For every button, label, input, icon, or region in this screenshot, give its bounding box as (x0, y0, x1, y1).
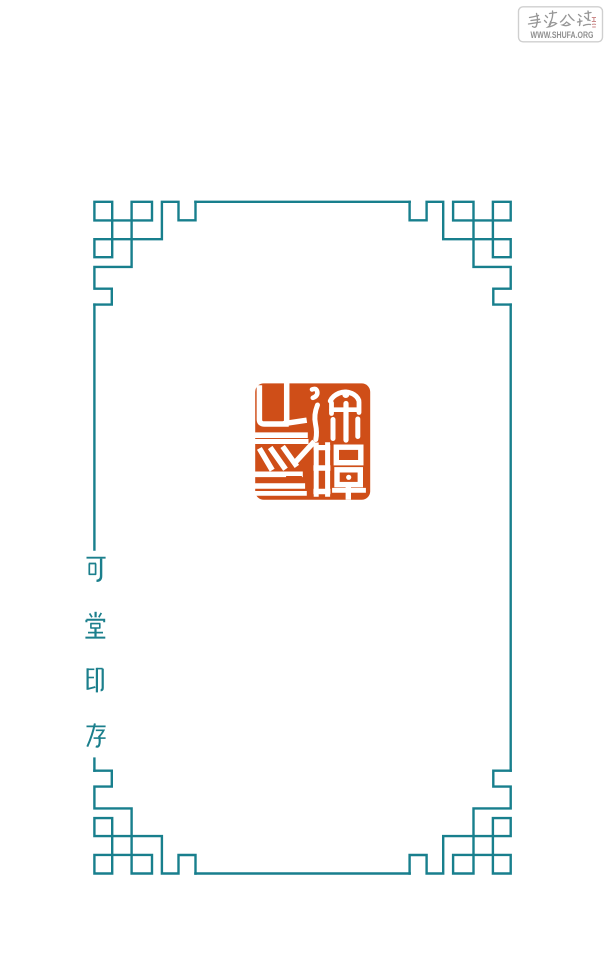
svg-text:WWW.SHUFA.ORG: WWW.SHUFA.ORG (531, 30, 594, 40)
